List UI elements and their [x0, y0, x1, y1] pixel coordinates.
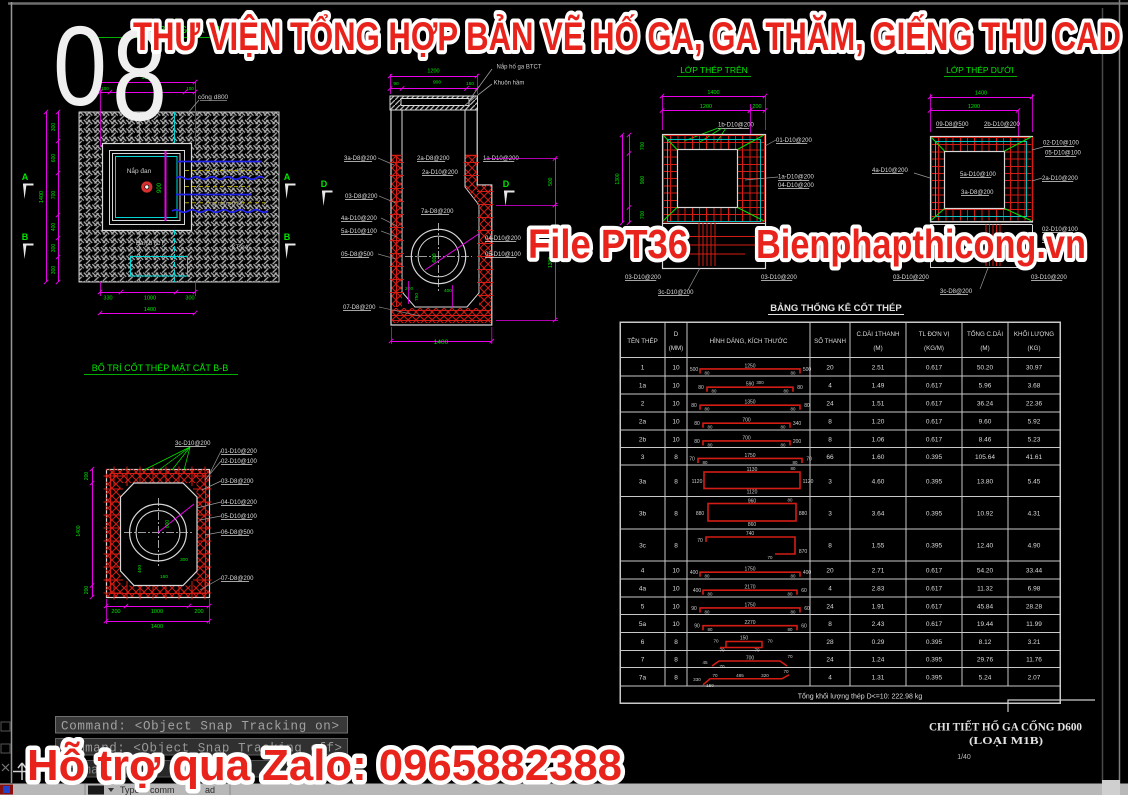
svg-text:2170: 2170	[744, 585, 755, 591]
svg-text:8: 8	[828, 419, 832, 426]
svg-text:0.617: 0.617	[926, 419, 943, 426]
svg-text:9.60: 9.60	[979, 419, 992, 426]
svg-text:1000: 1000	[151, 609, 163, 615]
svg-text:12.40: 12.40	[977, 543, 994, 550]
svg-text:28.28: 28.28	[1026, 603, 1043, 610]
svg-text:2.43: 2.43	[872, 621, 885, 628]
svg-text:1350: 1350	[744, 400, 755, 406]
svg-text:LỚP THÉP DƯỚI: LỚP THÉP DƯỚI	[946, 65, 1014, 75]
svg-text:1130: 1130	[747, 467, 758, 473]
svg-text:0.617: 0.617	[926, 401, 943, 408]
svg-text:0.617: 0.617	[926, 364, 943, 371]
svg-text:1750: 1750	[744, 602, 755, 608]
svg-text:19.44: 19.44	[977, 621, 994, 628]
svg-text:70: 70	[697, 538, 703, 544]
svg-text:3.21: 3.21	[1028, 639, 1041, 646]
svg-text:500: 500	[690, 367, 699, 373]
svg-text:Khuôn hầm: Khuôn hầm	[494, 81, 525, 87]
svg-text:8: 8	[828, 621, 832, 628]
svg-text:1200: 1200	[427, 69, 439, 75]
svg-text:4.90: 4.90	[1028, 543, 1041, 550]
svg-text:BỐ TRÍ CỐT THÉP MẶT CẮT B-B: BỐ TRÍ CỐT THÉP MẶT CẮT B-B	[92, 362, 229, 373]
svg-text:6.98: 6.98	[1028, 586, 1041, 593]
svg-text:70: 70	[768, 555, 773, 560]
svg-text:11.76: 11.76	[1026, 657, 1042, 664]
svg-text:1400: 1400	[707, 90, 719, 96]
svg-text:300: 300	[51, 266, 57, 275]
svg-text:3b: 3b	[639, 510, 647, 517]
svg-text:LỚP THÉP TRÊN: LỚP THÉP TRÊN	[680, 65, 748, 75]
svg-text:4.31: 4.31	[1028, 510, 1041, 517]
svg-text:80: 80	[781, 425, 786, 430]
svg-text:330: 330	[103, 296, 112, 302]
svg-text:05-D10@100: 05-D10@100	[1045, 151, 1081, 157]
svg-text:33.44: 33.44	[1026, 568, 1043, 575]
svg-text:1300: 1300	[615, 173, 621, 184]
svg-text:1/40: 1/40	[957, 754, 971, 761]
svg-text:cống d800: cống d800	[198, 92, 229, 101]
svg-text:5.24: 5.24	[979, 674, 992, 681]
svg-text:100: 100	[186, 86, 194, 91]
svg-text:200: 200	[752, 104, 761, 110]
svg-text:24: 24	[826, 401, 834, 408]
svg-text:8.12: 8.12	[979, 639, 992, 646]
svg-text:5: 5	[641, 603, 645, 610]
svg-text:70: 70	[806, 456, 812, 462]
svg-text:22.36: 22.36	[1026, 401, 1043, 408]
svg-text:0.29: 0.29	[872, 639, 885, 646]
svg-text:0.617: 0.617	[926, 383, 943, 390]
svg-text:8.46: 8.46	[979, 436, 992, 443]
svg-text:(LOẠI M1B): (LOẠI M1B)	[969, 736, 1044, 747]
svg-text:70: 70	[719, 664, 725, 669]
svg-text:80: 80	[781, 442, 786, 447]
svg-text:80: 80	[691, 403, 697, 409]
svg-text:300: 300	[756, 380, 764, 385]
svg-text:10: 10	[672, 419, 680, 426]
svg-text:80: 80	[705, 609, 710, 614]
svg-text:20: 20	[826, 364, 834, 371]
svg-text:0.395: 0.395	[926, 478, 943, 485]
svg-text:1b-D10@200: 1b-D10@200	[718, 123, 754, 129]
svg-text:700: 700	[51, 191, 57, 200]
svg-text:1a: 1a	[639, 383, 647, 390]
svg-text:5.23: 5.23	[1028, 436, 1041, 443]
svg-text:60: 60	[804, 606, 810, 612]
svg-text:700: 700	[640, 142, 646, 151]
svg-text:10: 10	[672, 603, 680, 610]
svg-text:30.97: 30.97	[1026, 364, 1043, 371]
svg-text:2.71: 2.71	[872, 568, 885, 575]
svg-text:1.51: 1.51	[872, 401, 885, 408]
svg-text:4.60: 4.60	[872, 478, 885, 485]
svg-text:1: 1	[641, 364, 645, 371]
svg-text:70: 70	[754, 648, 760, 653]
svg-text:600: 600	[165, 520, 171, 529]
svg-text:750: 750	[414, 293, 420, 301]
svg-text:340: 340	[793, 421, 802, 427]
svg-text:8: 8	[674, 454, 678, 461]
svg-text:500: 500	[803, 367, 812, 373]
svg-text:200: 200	[111, 609, 120, 615]
svg-text:200: 200	[405, 286, 413, 292]
svg-text:50.20: 50.20	[977, 364, 994, 371]
svg-text:66: 66	[826, 454, 834, 461]
svg-text:0.395: 0.395	[926, 454, 943, 461]
svg-text:3c: 3c	[639, 543, 647, 550]
svg-text:500: 500	[548, 177, 554, 186]
svg-text:1120: 1120	[803, 479, 814, 485]
svg-text:80: 80	[705, 574, 710, 579]
svg-text:02-D10@100: 02-D10@100	[1043, 141, 1079, 147]
svg-text:80: 80	[793, 460, 798, 465]
svg-text:4: 4	[828, 383, 832, 390]
svg-text:KT ø4: KT ø4	[232, 245, 249, 251]
svg-text:Bienphapthicong.vn: Bienphapthicong.vn	[756, 221, 1086, 267]
svg-text:45: 45	[702, 660, 708, 665]
svg-text:1250: 1250	[744, 363, 755, 369]
svg-text:D: D	[503, 179, 510, 189]
svg-text:330: 330	[693, 677, 701, 682]
svg-text:80: 80	[791, 407, 796, 412]
svg-text:740: 740	[746, 531, 755, 537]
svg-text:10: 10	[672, 621, 680, 628]
svg-text:80: 80	[788, 592, 793, 597]
svg-text:0.617: 0.617	[926, 621, 943, 628]
svg-text:1.20: 1.20	[872, 419, 885, 426]
svg-text:900: 900	[640, 176, 646, 185]
svg-text:400: 400	[137, 565, 143, 573]
svg-text:24: 24	[826, 603, 834, 610]
svg-text:80: 80	[703, 460, 708, 465]
svg-text:7: 7	[641, 657, 645, 664]
svg-text:8: 8	[674, 674, 678, 681]
svg-text:80: 80	[705, 407, 710, 412]
svg-text:400: 400	[690, 570, 699, 576]
svg-text:A: A	[284, 172, 291, 182]
svg-text:200: 200	[793, 439, 802, 445]
svg-text:20: 20	[826, 568, 834, 575]
svg-text:1.49: 1.49	[872, 383, 885, 390]
svg-text:80: 80	[804, 403, 810, 409]
svg-text:36.24: 36.24	[977, 401, 994, 408]
svg-text:10: 10	[672, 436, 680, 443]
svg-text:2: 2	[641, 401, 645, 408]
svg-text:1400: 1400	[76, 525, 82, 536]
svg-text:7a: 7a	[639, 674, 647, 681]
svg-text:90: 90	[393, 81, 399, 87]
svg-text:1.60: 1.60	[872, 454, 885, 461]
svg-text:45.84: 45.84	[977, 603, 994, 610]
svg-text:B: B	[284, 232, 291, 242]
svg-text:3.68: 3.68	[1028, 383, 1041, 390]
svg-text:8: 8	[674, 639, 678, 646]
svg-text:70: 70	[713, 639, 719, 644]
svg-text:3a: 3a	[639, 478, 647, 485]
svg-text:3: 3	[828, 478, 832, 485]
svg-text:10: 10	[672, 586, 680, 593]
svg-text:0.395: 0.395	[926, 674, 943, 681]
svg-text:80: 80	[694, 439, 700, 445]
svg-text:2b: 2b	[639, 436, 647, 443]
svg-text:80: 80	[791, 609, 796, 614]
svg-text:1200: 1200	[968, 104, 980, 110]
svg-text:80: 80	[708, 592, 713, 597]
svg-text:(KG/M): (KG/M)	[924, 345, 944, 352]
svg-text:5.45: 5.45	[1028, 478, 1041, 485]
svg-text:200: 200	[84, 472, 90, 481]
svg-text:Hỗ trợ qua Zalo: 0965882388: Hỗ trợ qua Zalo: 0965882388	[27, 740, 622, 790]
svg-text:10: 10	[672, 383, 680, 390]
svg-text:11.99: 11.99	[1026, 621, 1042, 628]
svg-text:Ống nhựa d600: Ống nhựa d600	[206, 200, 245, 207]
svg-text:1.24: 1.24	[872, 657, 885, 664]
svg-text:80: 80	[788, 498, 793, 503]
svg-text:880: 880	[799, 511, 808, 517]
svg-text:0.395: 0.395	[926, 639, 943, 646]
svg-text:1120: 1120	[747, 490, 758, 496]
svg-text:300: 300	[180, 557, 188, 563]
svg-text:8: 8	[674, 478, 678, 485]
svg-text:5.92: 5.92	[1028, 419, 1041, 426]
svg-text:Tổng khối lượng thép D<=10: 2: Tổng khối lượng thép D<=10: 222.98 kg	[798, 692, 923, 701]
svg-text:D: D	[321, 179, 328, 189]
svg-text:1400: 1400	[39, 191, 45, 203]
svg-text:2.83: 2.83	[872, 586, 885, 593]
svg-text:80: 80	[797, 385, 803, 391]
svg-text:400: 400	[693, 588, 702, 594]
svg-text:8: 8	[674, 510, 678, 517]
svg-text:60: 60	[801, 624, 807, 630]
svg-text:880: 880	[696, 511, 705, 517]
svg-text:60: 60	[801, 588, 807, 594]
svg-text:1.91: 1.91	[872, 603, 885, 610]
svg-text:D: D	[674, 331, 679, 338]
svg-text:File PT36: File PT36	[528, 221, 688, 267]
svg-text:1400: 1400	[144, 307, 156, 313]
svg-text:Nắp đan: Nắp đan	[127, 166, 152, 175]
svg-text:1400: 1400	[151, 624, 163, 630]
svg-text:2a: 2a	[639, 419, 647, 426]
svg-text:400: 400	[803, 570, 812, 576]
svg-text:SỐ THANH: SỐ THANH	[814, 338, 846, 345]
svg-text:80: 80	[784, 389, 789, 394]
svg-text:870: 870	[799, 549, 808, 555]
svg-text:0.617: 0.617	[926, 436, 943, 443]
svg-text:10.92: 10.92	[977, 510, 994, 517]
svg-text:2.07: 2.07	[1028, 674, 1041, 681]
svg-text:70: 70	[783, 669, 789, 674]
svg-text:HÌNH DÁNG, KÍCH THƯỚC: HÌNH DÁNG, KÍCH THƯỚC	[710, 338, 788, 345]
svg-text:0: 0	[53, 3, 107, 129]
svg-text:54.20: 54.20	[977, 568, 994, 575]
svg-text:(KG): (KG)	[1027, 345, 1040, 352]
svg-text:105.64: 105.64	[975, 454, 995, 461]
svg-text:KHỐI LƯỢNG: KHỐI LƯỢNG	[1014, 331, 1054, 338]
svg-text:4: 4	[641, 568, 645, 575]
svg-text:1.31: 1.31	[872, 674, 885, 681]
svg-text:29.76: 29.76	[977, 657, 994, 664]
svg-text:10: 10	[672, 401, 680, 408]
svg-text:8: 8	[828, 436, 832, 443]
svg-text:860: 860	[748, 522, 757, 528]
svg-text:80: 80	[698, 385, 704, 391]
svg-text:0.395: 0.395	[926, 510, 943, 517]
svg-text:C.DÀI 1THANH: C.DÀI 1THANH	[857, 331, 900, 338]
svg-text:CHI TIẾT HỐ GA CỐNG D600: CHI TIẾT HỐ GA CỐNG D600	[929, 719, 1082, 734]
svg-text:0.617: 0.617	[926, 586, 943, 593]
svg-text:13.80: 13.80	[977, 478, 994, 485]
svg-text:8: 8	[674, 543, 678, 550]
svg-text:28: 28	[826, 639, 834, 646]
svg-text:70: 70	[689, 456, 695, 462]
svg-text:80: 80	[712, 389, 717, 394]
svg-text:200: 200	[84, 586, 90, 595]
svg-text:24: 24	[826, 657, 834, 664]
svg-text:150: 150	[706, 683, 714, 688]
svg-text:150: 150	[740, 636, 749, 642]
svg-text:3: 3	[828, 510, 832, 517]
svg-text:5a: 5a	[639, 621, 647, 628]
svg-text:1000: 1000	[144, 296, 156, 302]
svg-text:320: 320	[761, 673, 769, 678]
svg-text:(MM): (MM)	[669, 345, 683, 352]
svg-text:80: 80	[708, 425, 713, 430]
svg-text:2270: 2270	[744, 620, 755, 626]
svg-text:80: 80	[791, 466, 796, 471]
svg-text:BẢNG THỐNG KÊ CỐT THÉP: BẢNG THỐNG KÊ CỐT THÉP	[770, 302, 902, 314]
svg-text:600: 600	[51, 154, 57, 163]
svg-text:80: 80	[788, 627, 793, 632]
svg-text:Command: <Object Snap Trackin: Command: <Object Snap Tracking on>	[61, 720, 339, 734]
svg-text:(M): (M)	[873, 345, 882, 352]
svg-text:Nắp hố ga BTCT: Nắp hố ga BTCT	[496, 64, 541, 71]
svg-text:70: 70	[787, 654, 793, 659]
svg-text:8: 8	[828, 543, 832, 550]
svg-text:TL ĐƠN VỊ: TL ĐƠN VỊ	[919, 331, 950, 338]
svg-text:80: 80	[694, 421, 700, 427]
svg-text:600: 600	[432, 253, 438, 262]
svg-text:0.617: 0.617	[926, 568, 943, 575]
svg-text:TÊN THÉP: TÊN THÉP	[627, 337, 657, 345]
svg-text:8: 8	[674, 657, 678, 664]
svg-text:1200: 1200	[700, 104, 712, 110]
svg-text:90: 90	[691, 606, 697, 612]
svg-text:80: 80	[708, 627, 713, 632]
svg-text:485: 485	[736, 673, 744, 678]
svg-text:700: 700	[742, 435, 751, 441]
svg-text:3.64: 3.64	[872, 510, 885, 517]
svg-text:4: 4	[828, 586, 832, 593]
svg-text:(M): (M)	[980, 345, 989, 352]
svg-text:700: 700	[746, 656, 755, 662]
svg-text:4a: 4a	[639, 586, 647, 593]
svg-text:11.32: 11.32	[977, 586, 993, 593]
svg-text:10: 10	[672, 364, 680, 371]
svg-text:0.617: 0.617	[926, 603, 943, 610]
svg-text:700: 700	[742, 418, 751, 424]
svg-text:70: 70	[719, 648, 725, 653]
svg-text:6: 6	[641, 639, 645, 646]
svg-text:1400: 1400	[434, 339, 449, 346]
svg-text:70: 70	[767, 639, 773, 644]
svg-text:70: 70	[712, 673, 718, 678]
svg-text:90: 90	[694, 624, 700, 630]
svg-text:1750: 1750	[744, 567, 755, 573]
svg-text:Đan BTCT: Đan BTCT	[136, 241, 165, 247]
svg-text:10: 10	[672, 568, 680, 575]
svg-text:1.06: 1.06	[872, 436, 885, 443]
svg-text:400: 400	[51, 223, 57, 232]
svg-text:700: 700	[640, 211, 646, 220]
svg-text:0.395: 0.395	[926, 543, 943, 550]
svg-text:1a-D10@200: 1a-D10@200	[778, 175, 814, 181]
svg-text:300: 300	[51, 244, 57, 253]
svg-text:4: 4	[828, 674, 832, 681]
svg-text:5.96: 5.96	[979, 383, 992, 390]
svg-text:150: 150	[466, 81, 474, 87]
svg-text:THƯ VIỆN TỔNG HỢP BẢN VẼ HỐ GA: THƯ VIỆN TỔNG HỢP BẢN VẼ HỐ GA, GA THĂM,…	[133, 12, 1121, 59]
svg-text:2.51: 2.51	[872, 364, 885, 371]
svg-text:1.55: 1.55	[872, 543, 885, 550]
svg-text:160: 160	[160, 574, 168, 580]
svg-text:200: 200	[194, 609, 203, 615]
svg-text:400: 400	[444, 288, 452, 294]
svg-text:900: 900	[157, 182, 163, 193]
svg-text:900: 900	[433, 80, 441, 86]
svg-text:41.61: 41.61	[1026, 454, 1043, 461]
svg-text:TỔNG C.DÀI: TỔNG C.DÀI	[967, 331, 1003, 338]
svg-text:1120: 1120	[692, 479, 703, 485]
svg-text:960: 960	[748, 499, 757, 505]
svg-text:300: 300	[185, 296, 194, 302]
svg-text:1750: 1750	[744, 453, 755, 459]
svg-text:Ống nhựa d600: Ống nhựa d600	[209, 167, 248, 174]
svg-text:0.395: 0.395	[926, 657, 943, 664]
svg-text:B: B	[22, 232, 29, 242]
svg-text:1400: 1400	[975, 91, 987, 97]
svg-text:A: A	[22, 172, 29, 182]
svg-text:80: 80	[791, 370, 796, 375]
svg-text:590: 590	[746, 382, 755, 388]
svg-text:80: 80	[791, 574, 796, 579]
svg-text:80: 80	[705, 370, 710, 375]
svg-text:80: 80	[708, 442, 713, 447]
svg-text:3: 3	[641, 454, 645, 461]
